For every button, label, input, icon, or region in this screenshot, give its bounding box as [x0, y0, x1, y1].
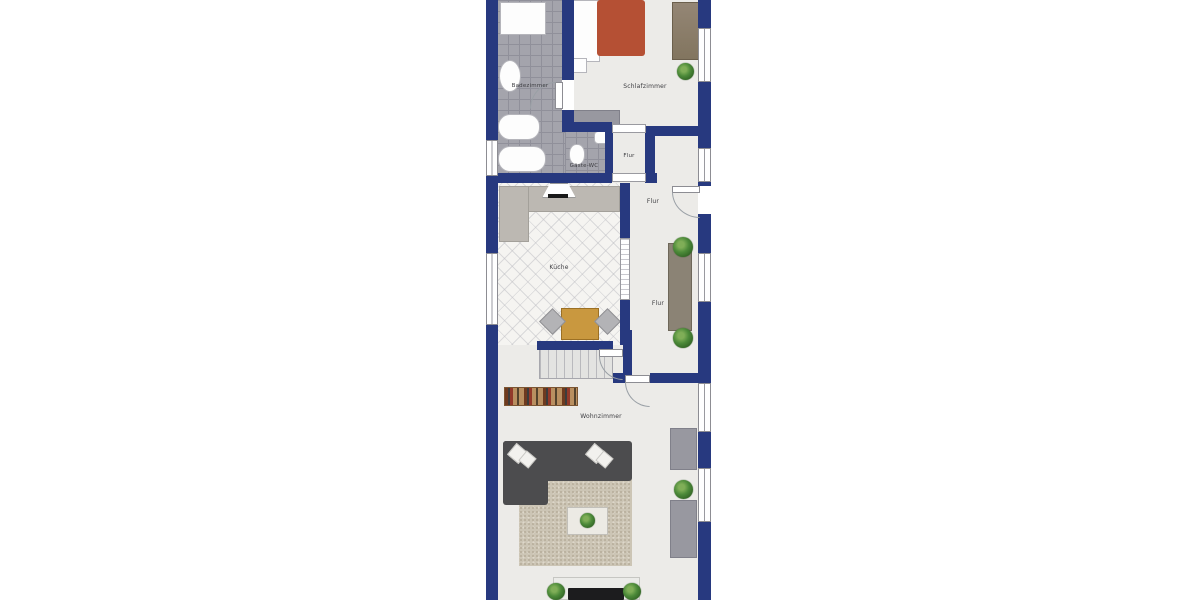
window-bathroom: [486, 140, 498, 176]
hall-plant-top-icon: [673, 237, 693, 257]
living-shelf-lower: [670, 500, 697, 558]
window-living-lower: [698, 468, 711, 522]
room-label-wohnzimmer: Wohnzimmer: [568, 413, 634, 420]
vestibule-door-top: [612, 124, 646, 133]
wc-toilet: [569, 144, 585, 165]
stove: [548, 194, 568, 198]
tv-plant-right-icon: [623, 583, 641, 600]
room-label-badezimmer: Badezimmer: [500, 83, 560, 90]
coffee-table-plant-icon: [580, 513, 595, 528]
kitchen-counter-left: [499, 186, 529, 242]
room-label-kueche: Küche: [538, 264, 580, 271]
tv: [568, 588, 624, 600]
window-hall: [698, 253, 711, 302]
window-bedroom: [698, 28, 711, 82]
wall-main-horizontal: [486, 173, 612, 183]
room-label-flur-oben: Flur: [638, 198, 668, 205]
kitchen-door: [620, 238, 630, 300]
wall-main-horizontal-right: [646, 173, 657, 183]
wall-vestibule-left: [605, 130, 613, 175]
window-hall-upper: [698, 148, 711, 182]
hall-plant-bottom-icon: [673, 328, 693, 348]
room-label-gaeste-wc: Gäste-WC: [563, 163, 605, 170]
vestibule-door-bottom: [612, 173, 646, 182]
bathroom-door-gap: [562, 80, 574, 110]
floor-plan: Badezimmer Schlafzimmer Gäste-WC Flur Fl…: [0, 0, 1200, 600]
kitchen-table: [561, 308, 599, 340]
living-plant-right-icon: [674, 480, 693, 499]
wall-hall-living-right: [650, 373, 711, 383]
tv-plant-left-icon: [547, 583, 565, 600]
room-label-flur-klein: Flur: [614, 153, 644, 160]
bathtub: [498, 146, 546, 172]
wardrobe: [672, 2, 699, 60]
living-shelf-upper: [670, 428, 697, 470]
room-label-flur: Flur: [642, 300, 674, 307]
window-kitchen: [486, 253, 498, 325]
shower: [500, 2, 546, 35]
living-sideboard: [504, 387, 578, 406]
bedroom-plant-icon: [677, 63, 694, 80]
bed-blanket: [597, 0, 645, 56]
bathroom-vanity: [498, 114, 540, 140]
room-label-schlafzimmer: Schlafzimmer: [610, 83, 680, 90]
window-living-upper: [698, 383, 711, 432]
